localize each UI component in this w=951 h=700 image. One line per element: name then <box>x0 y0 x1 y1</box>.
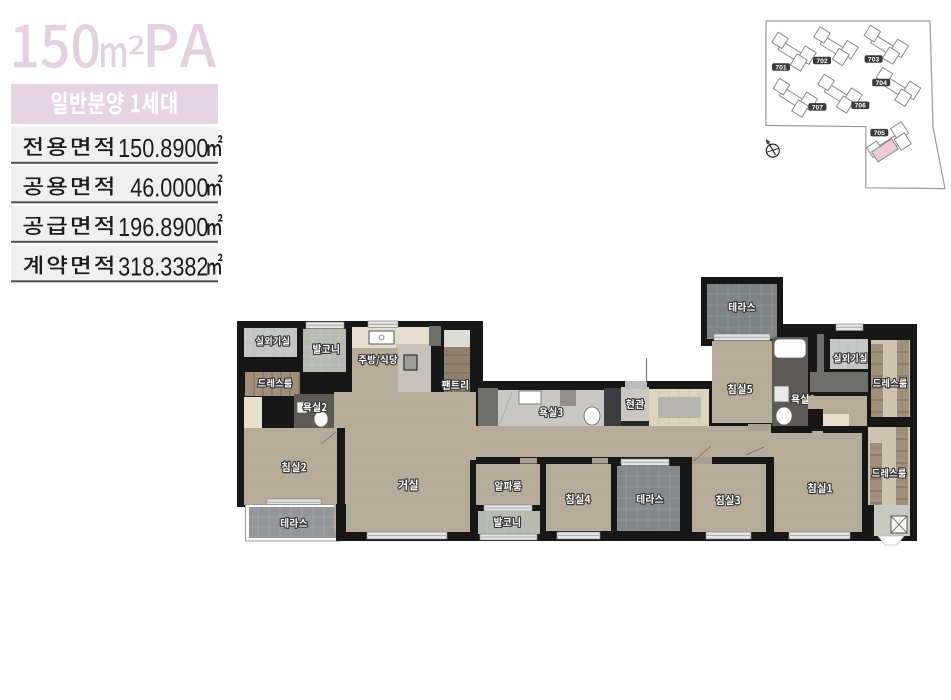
svg-text:704: 704 <box>876 80 888 87</box>
svg-text:705: 705 <box>874 130 886 137</box>
svg-text:707: 707 <box>812 104 824 111</box>
svg-text:46.0000: 46.0000 <box>130 174 208 203</box>
svg-text:706: 706 <box>855 103 867 110</box>
svg-text:150.8900: 150.8900 <box>118 134 208 163</box>
svg-text:701: 701 <box>775 64 787 71</box>
svg-text:702: 702 <box>816 58 828 65</box>
svg-text:196.8900: 196.8900 <box>118 213 208 242</box>
svg-text:318.3382: 318.3382 <box>118 253 208 282</box>
svg-text:703: 703 <box>868 57 880 64</box>
